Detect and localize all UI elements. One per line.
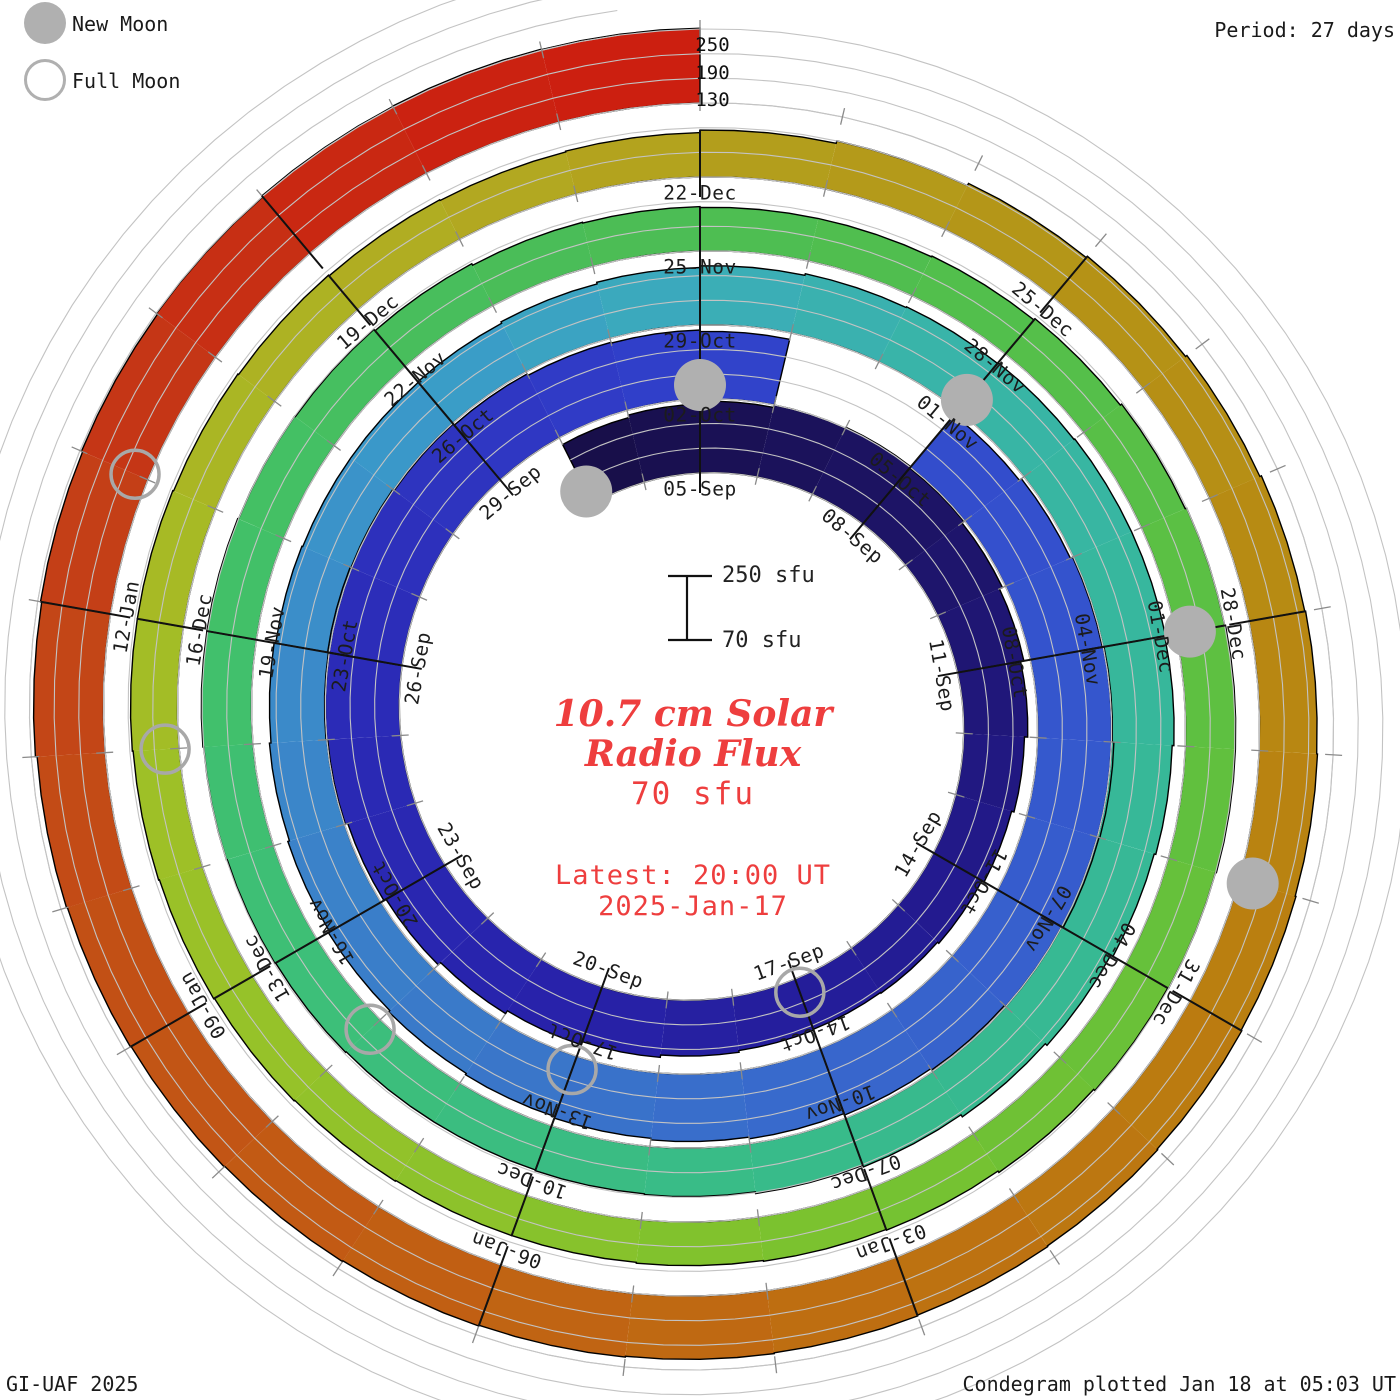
date-label: 29-Oct (663, 330, 736, 353)
current-flux-value: 70 sfu (390, 776, 996, 812)
new-moon-icon (24, 2, 66, 44)
legend-new-moon-label: New Moon (72, 12, 168, 36)
radial-axis-130: 130 (630, 87, 795, 115)
date-label: 25-Nov (663, 256, 736, 279)
scale-min-label: 70 sfu (722, 628, 801, 653)
legend-full-moon-label: Full Moon (72, 69, 180, 93)
new-moon-marker (560, 465, 612, 517)
date-label: 02-Oct (663, 404, 736, 427)
period-label: Period: 27 days (1214, 18, 1395, 42)
plotted-timestamp-label: Condegram plotted Jan 18 at 05:03 UT (963, 1372, 1396, 1396)
date-label: 22-Dec (663, 182, 736, 205)
latest-reading-time: Latest: 20:00 UT (390, 860, 996, 891)
date-label: 05-Sep (663, 478, 736, 501)
chart-title: 10.7 cm Solar Radio Flux (390, 694, 996, 774)
radial-axis-190: 190 (630, 60, 795, 88)
radial-axis-labels: 250 190 130 (630, 32, 795, 115)
chart-title-line1: 10.7 cm Solar (390, 694, 996, 734)
radial-axis-250: 250 (630, 32, 795, 60)
new-moon-marker (1227, 857, 1279, 909)
credit-label: GI-UAF 2025 (6, 1372, 138, 1396)
latest-reading: Latest: 20:00 UT 2025-Jan-17 (390, 860, 996, 922)
full-moon-icon (24, 59, 66, 101)
condegram-page: 05-Sep08-Sep11-Sep14-Sep17-Sep20-Sep23-S… (0, 0, 1400, 1400)
latest-reading-date: 2025-Jan-17 (390, 891, 996, 922)
scale-max-label: 250 sfu (722, 563, 815, 588)
chart-title-line2: Radio Flux (390, 734, 996, 774)
